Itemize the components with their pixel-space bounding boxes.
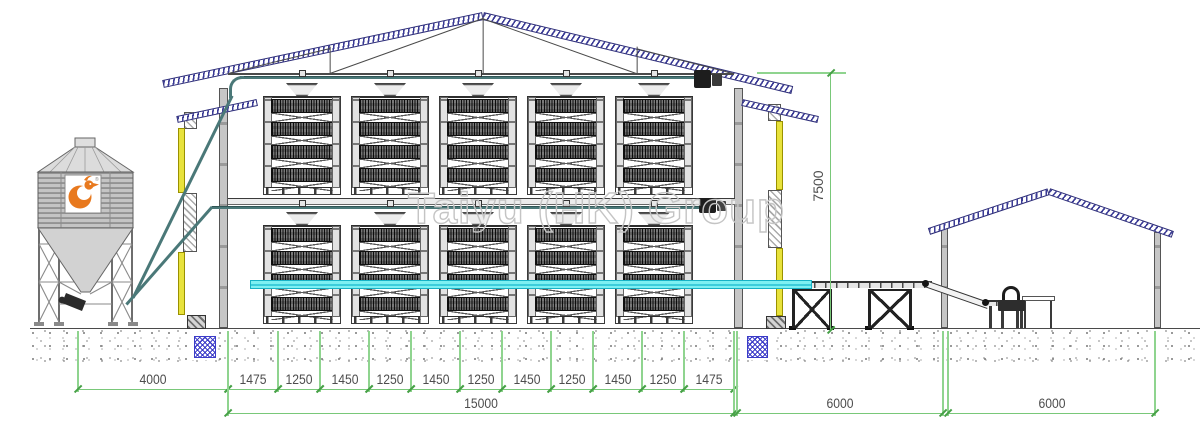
- cage-tier: [271, 168, 333, 182]
- dimension-label: 6000: [804, 396, 876, 411]
- cage-tier: [447, 251, 509, 265]
- incline-pulley-bottom: [982, 299, 989, 306]
- cross-brace: [535, 288, 597, 297]
- cross-brace: [271, 113, 333, 122]
- dimension-line: [502, 389, 551, 390]
- feed-hopper: [462, 83, 494, 96]
- cage-tier: [447, 99, 509, 113]
- cage-tier: [623, 168, 685, 182]
- battery-frame: [615, 96, 693, 195]
- dimension-line: [320, 389, 369, 390]
- dimension-extension-line: [1154, 331, 1155, 416]
- cross-brace: [535, 159, 597, 168]
- cage-tier: [623, 99, 685, 113]
- left-wall-footing: [187, 315, 206, 329]
- feed-drop-fitting: [475, 70, 482, 77]
- cage-tier: [447, 297, 509, 311]
- cross-brace: [359, 159, 421, 168]
- battery-frame: [263, 225, 341, 324]
- battery-frame: [351, 225, 429, 324]
- packing-table-top: [1022, 296, 1055, 301]
- dimension-extension-line: [736, 331, 737, 416]
- battery-base: [266, 316, 338, 323]
- feed-drop-fitting: [299, 200, 306, 207]
- cage-tier: [623, 122, 685, 136]
- battery-frame: [439, 225, 517, 324]
- cage-tier: [535, 145, 597, 159]
- cross-brace: [359, 242, 421, 251]
- cage-battery: [263, 83, 341, 195]
- dimension-line: [278, 389, 320, 390]
- dimension-line: [551, 389, 593, 390]
- dimension-extension-line: [227, 331, 228, 416]
- upper-feed-line: [240, 76, 703, 79]
- dimension-line: [411, 389, 460, 390]
- cross-brace: [623, 265, 685, 274]
- cross-brace: [535, 113, 597, 122]
- cross-brace: [447, 265, 509, 274]
- cross-brace: [535, 242, 597, 251]
- battery-base: [442, 316, 514, 323]
- cage-battery: [615, 83, 693, 195]
- cage-battery: [351, 83, 429, 195]
- truss-post: [636, 47, 637, 74]
- silo-cap: [75, 138, 95, 147]
- feed-drop-fitting: [299, 70, 306, 77]
- cage-tier: [535, 168, 597, 182]
- cross-brace: [359, 288, 421, 297]
- cage-tier: [447, 168, 509, 182]
- egg-collector-body: [998, 300, 1025, 311]
- cross-brace: [623, 242, 685, 251]
- incline-pulley-top: [922, 280, 929, 287]
- feed-hopper: [286, 212, 318, 225]
- cross-brace: [271, 242, 333, 251]
- dimension-extension-line: [942, 331, 943, 416]
- dimension-line: [228, 413, 734, 414]
- cage-tier: [535, 99, 597, 113]
- cross-brace: [447, 288, 509, 297]
- cross-brace: [623, 159, 685, 168]
- cross-brace: [271, 159, 333, 168]
- left-awning: [176, 99, 257, 123]
- conveyor-support-table: [792, 289, 832, 328]
- height-dimension-extension: [757, 72, 846, 73]
- cage-tier: [447, 122, 509, 136]
- battery-frame: [439, 96, 517, 195]
- battery-base: [266, 187, 338, 194]
- truss-king-post: [482, 18, 483, 74]
- left-wall-panel-upper: [178, 128, 185, 193]
- cage-tier: [359, 122, 421, 136]
- dimension-label: 6000: [1016, 396, 1088, 411]
- cross-brace: [359, 265, 421, 274]
- registered-mark: ®: [95, 176, 99, 183]
- dimension-extension-line: [77, 331, 78, 392]
- dimension-extension-line: [733, 331, 734, 416]
- cage-tier: [623, 251, 685, 265]
- dimension-label: 15000: [445, 396, 517, 411]
- feed-hopper: [374, 83, 406, 96]
- feed-hopper: [638, 83, 670, 96]
- egg-room-roof-left-slope: [928, 188, 1050, 235]
- cross-brace: [447, 136, 509, 145]
- cage-tier: [271, 122, 333, 136]
- dimension-line: [642, 389, 684, 390]
- feed-hopper: [286, 83, 318, 96]
- cross-brace: [623, 136, 685, 145]
- feed-drop-fitting: [651, 70, 658, 77]
- cage-tier: [359, 168, 421, 182]
- cage-tier: [271, 251, 333, 265]
- cage-tier: [535, 297, 597, 311]
- cross-brace: [271, 265, 333, 274]
- egg-room-roof-right-slope: [1048, 188, 1174, 238]
- cross-brace: [359, 136, 421, 145]
- feed-drop-fitting: [387, 70, 394, 77]
- battery-frame: [351, 96, 429, 195]
- cage-tier: [359, 99, 421, 113]
- right-wall-panel-upper: [776, 121, 783, 190]
- cage-tier: [623, 297, 685, 311]
- cage-battery: [439, 83, 517, 195]
- cage-tier: [271, 145, 333, 159]
- truss-post: [329, 47, 330, 74]
- cage-tier: [535, 251, 597, 265]
- cross-brace: [535, 136, 597, 145]
- battery-frame: [527, 225, 605, 324]
- conveyor-support-table: [868, 289, 912, 328]
- cage-battery: [527, 83, 605, 195]
- cage-tier: [359, 297, 421, 311]
- dimension-label: 7500: [810, 166, 826, 206]
- egg-belt: [250, 280, 812, 289]
- cage-tier: [359, 145, 421, 159]
- dimension-line: [369, 389, 411, 390]
- cross-brace: [623, 113, 685, 122]
- dimension-line: [78, 389, 228, 390]
- cross-brace: [447, 159, 509, 168]
- battery-frame: [527, 96, 605, 195]
- dimension-line: [593, 389, 642, 390]
- battery-frame: [615, 225, 693, 324]
- left-wall-panel-lower: [178, 252, 185, 315]
- watermark: Taiyu (HK) Group: [408, 184, 808, 234]
- egg-belt-incline: [924, 280, 989, 309]
- battery-base: [354, 316, 426, 323]
- dimension-extension-line: [947, 331, 948, 416]
- dimension-line: [460, 389, 502, 390]
- cage-tier: [271, 297, 333, 311]
- cross-brace: [271, 136, 333, 145]
- upper-feed-motor: [694, 70, 711, 88]
- right-wall-footing: [766, 316, 786, 329]
- dimension-label: 4000: [117, 372, 189, 387]
- cage-tier: [623, 145, 685, 159]
- feed-hopper: [374, 212, 406, 225]
- cage-tier: [271, 228, 333, 242]
- silo-roof: [38, 147, 133, 172]
- dimension-line: [737, 413, 943, 414]
- feed-hopper: [550, 83, 582, 96]
- battery-base: [618, 316, 690, 323]
- cross-brace: [447, 113, 509, 122]
- cage-battery: [263, 212, 341, 324]
- cage-tier: [447, 145, 509, 159]
- dimension-line: [948, 413, 1155, 414]
- height-dimension-line: [830, 73, 831, 330]
- dimension-line: [684, 389, 734, 390]
- cage-tier: [271, 99, 333, 113]
- battery-base: [530, 316, 602, 323]
- battery-frame: [263, 96, 341, 195]
- cross-brace: [271, 288, 333, 297]
- dimension-line: [228, 389, 278, 390]
- cross-brace: [447, 242, 509, 251]
- cross-brace: [535, 265, 597, 274]
- elevation-drawing: ® Taiyu (HK) Group: [0, 0, 1200, 429]
- feed-drop-fitting: [563, 70, 570, 77]
- feed-drop-fitting: [387, 200, 394, 207]
- silo-auger-motor: [62, 293, 86, 311]
- cage-tier: [359, 251, 421, 265]
- upper-feed-motor-gearbox: [712, 74, 722, 86]
- cage-tier: [535, 122, 597, 136]
- cross-brace: [359, 113, 421, 122]
- cross-brace: [623, 288, 685, 297]
